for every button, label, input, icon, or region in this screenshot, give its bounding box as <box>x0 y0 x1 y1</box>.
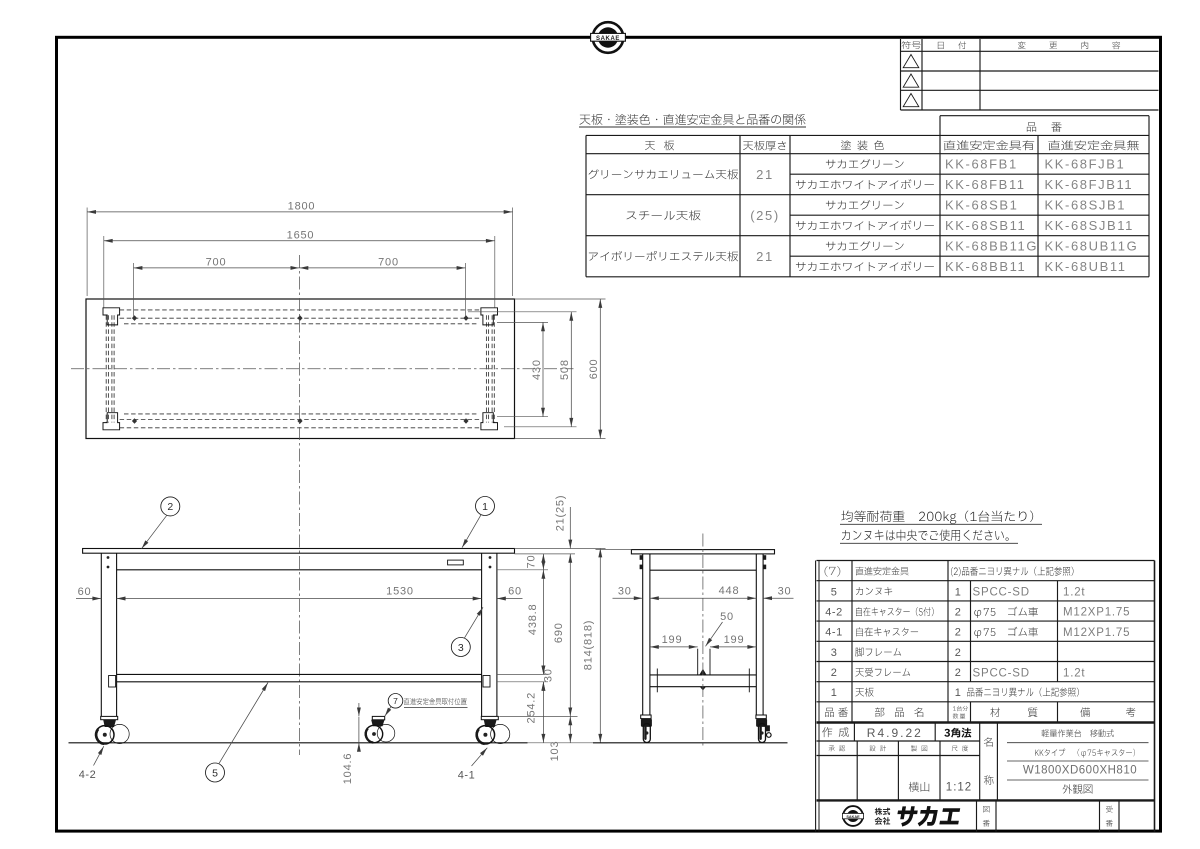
svg-text:430: 430 <box>531 359 543 380</box>
svg-text:1.2t: 1.2t <box>1063 587 1085 599</box>
svg-text:7: 7 <box>393 696 398 706</box>
svg-text:2: 2 <box>955 647 962 659</box>
svg-text:1650: 1650 <box>287 230 315 242</box>
svg-text:2: 2 <box>955 607 962 619</box>
svg-text:448: 448 <box>719 585 740 597</box>
svg-text:KK-68SJB1: KK-68SJB1 <box>1045 198 1127 213</box>
svg-text:2: 2 <box>955 667 962 679</box>
svg-text:700: 700 <box>378 257 399 269</box>
svg-text:60: 60 <box>78 586 92 598</box>
svg-text:254.2: 254.2 <box>526 692 538 724</box>
svg-text:KK-68FJB1: KK-68FJB1 <box>1045 157 1126 172</box>
svg-text:SPCC-SD: SPCC-SD <box>973 587 1030 599</box>
svg-text:4-1: 4-1 <box>825 627 842 639</box>
svg-text:50: 50 <box>720 611 734 623</box>
svg-text:103: 103 <box>549 741 561 762</box>
svg-text:KK-68SB1: KK-68SB1 <box>945 198 1019 213</box>
svg-text:W1800XD600XH810: W1800XD600XH810 <box>1023 765 1137 777</box>
svg-text:3: 3 <box>458 642 464 654</box>
svg-text:690: 690 <box>553 622 565 643</box>
svg-text:KK-68SB11: KK-68SB11 <box>945 218 1026 233</box>
svg-text:1: 1 <box>955 687 962 699</box>
svg-text:2: 2 <box>831 667 838 679</box>
svg-text:438.8: 438.8 <box>527 604 539 636</box>
svg-text:2: 2 <box>167 501 173 513</box>
svg-text:KK-68BB11G: KK-68BB11G <box>945 239 1038 254</box>
svg-text:SPCC-SD: SPCC-SD <box>973 667 1030 679</box>
svg-text:5: 5 <box>831 586 838 598</box>
svg-text:1530: 1530 <box>386 586 414 598</box>
svg-text:KK-68FB11: KK-68FB11 <box>945 177 1026 192</box>
svg-text:KK-68UB11G: KK-68UB11G <box>1045 239 1139 254</box>
svg-text:21: 21 <box>756 249 774 264</box>
svg-text:60: 60 <box>508 586 522 598</box>
svg-text:1.2t: 1.2t <box>1063 667 1085 679</box>
svg-text:M12XP1.75: M12XP1.75 <box>1063 607 1130 619</box>
svg-text:SAKAE: SAKAE <box>846 815 860 819</box>
svg-text:KK-68FJB11: KK-68FJB11 <box>1045 177 1134 192</box>
svg-text:199: 199 <box>724 634 745 646</box>
svg-text:2: 2 <box>955 627 962 639</box>
svg-text:1:12: 1:12 <box>946 782 972 794</box>
svg-text:5: 5 <box>212 767 218 779</box>
svg-text:1: 1 <box>831 687 838 699</box>
svg-text:4-2: 4-2 <box>79 769 96 781</box>
svg-text:70: 70 <box>526 555 538 569</box>
svg-text:30: 30 <box>778 585 792 597</box>
svg-text:4-2: 4-2 <box>825 607 842 619</box>
svg-text:1: 1 <box>482 501 488 513</box>
svg-text:4-1: 4-1 <box>458 770 475 782</box>
svg-text:1: 1 <box>955 586 962 598</box>
svg-text:600: 600 <box>588 359 600 380</box>
svg-text:21: 21 <box>756 167 774 182</box>
svg-text:21(25): 21(25) <box>555 495 567 532</box>
svg-text:814(818): 814(818) <box>583 620 595 670</box>
svg-text:1800: 1800 <box>288 201 316 213</box>
svg-text:30: 30 <box>618 585 632 597</box>
svg-text:R4.9.22: R4.9.22 <box>867 726 923 740</box>
svg-text:199: 199 <box>662 634 683 646</box>
svg-text:KK-68FB1: KK-68FB1 <box>945 157 1018 172</box>
svg-text:508: 508 <box>559 359 571 380</box>
svg-text:700: 700 <box>206 257 227 269</box>
svg-text:KK-68UB11: KK-68UB11 <box>1045 259 1127 274</box>
svg-text:(25): (25) <box>750 208 780 223</box>
svg-text:M12XP1.75: M12XP1.75 <box>1063 627 1130 639</box>
svg-text:104.6: 104.6 <box>342 753 354 785</box>
svg-text:KK-68BB11: KK-68BB11 <box>945 259 1026 274</box>
svg-text:KK-68SJB11: KK-68SJB11 <box>1045 218 1134 233</box>
svg-text:30: 30 <box>543 668 555 682</box>
svg-text:SAKAE: SAKAE <box>596 36 620 42</box>
svg-text:3: 3 <box>831 647 838 659</box>
